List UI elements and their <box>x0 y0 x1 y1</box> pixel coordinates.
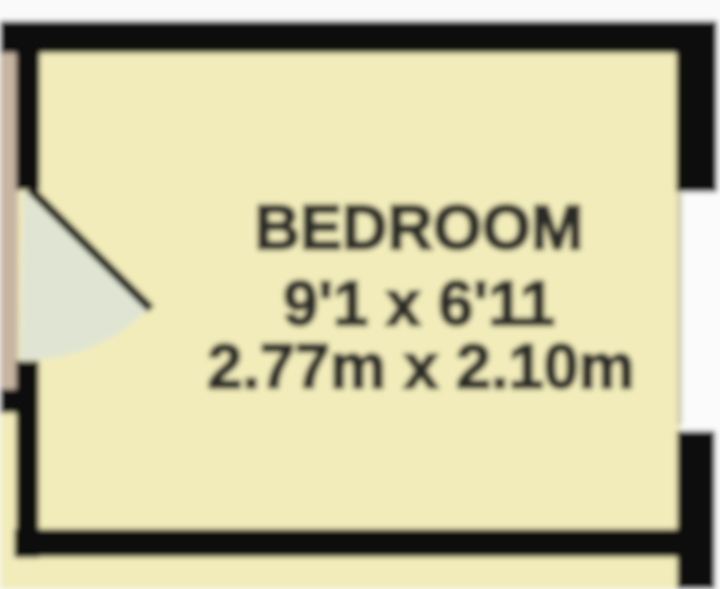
svg-text:9'1 x 6'11: 9'1 x 6'11 <box>283 269 555 339</box>
svg-text:2.77m x 2.10m: 2.77m x 2.10m <box>207 332 634 402</box>
svg-text:BEDROOM: BEDROOM <box>255 193 584 263</box>
